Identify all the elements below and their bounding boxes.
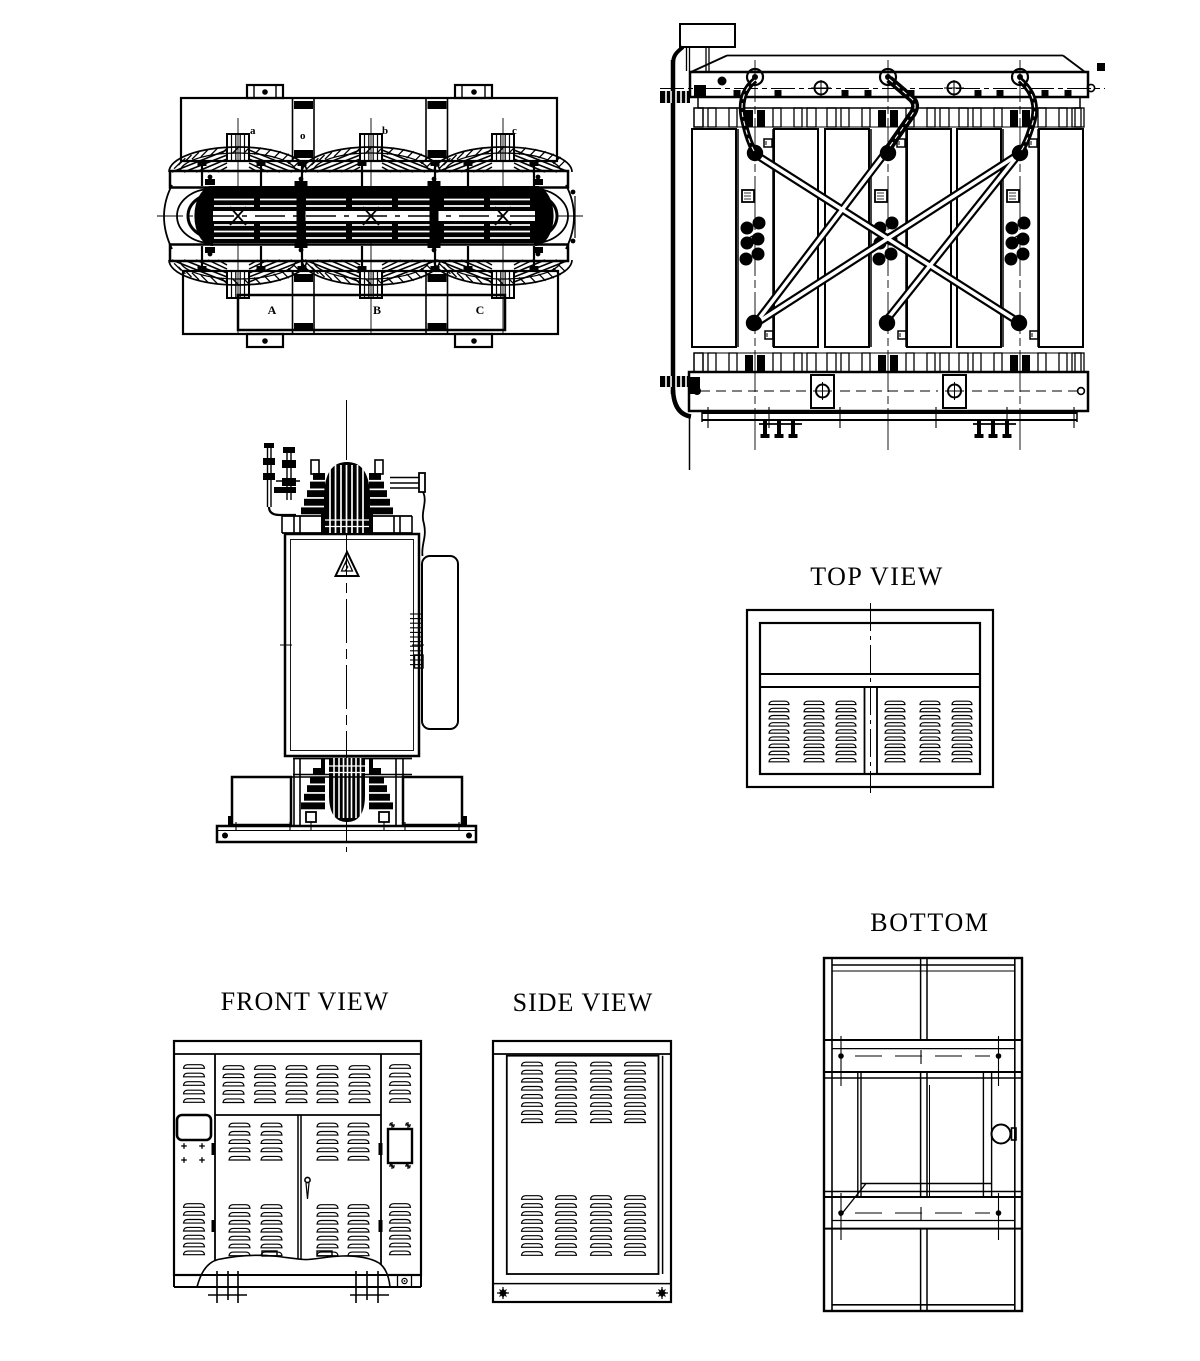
svg-text:C: C (476, 303, 485, 317)
svg-text:A: A (268, 303, 277, 317)
svg-text:TOP VIEW: TOP VIEW (810, 562, 944, 591)
svg-text:B: B (373, 303, 381, 317)
svg-text:FRONT VIEW: FRONT VIEW (221, 987, 390, 1016)
svg-text:BOTTOM: BOTTOM (870, 908, 990, 937)
svg-text:a: a (250, 125, 256, 137)
svg-text:b: b (382, 125, 388, 137)
svg-text:c: c (512, 125, 517, 137)
svg-text:o: o (300, 130, 306, 142)
svg-text:SIDE VIEW: SIDE VIEW (513, 988, 654, 1017)
